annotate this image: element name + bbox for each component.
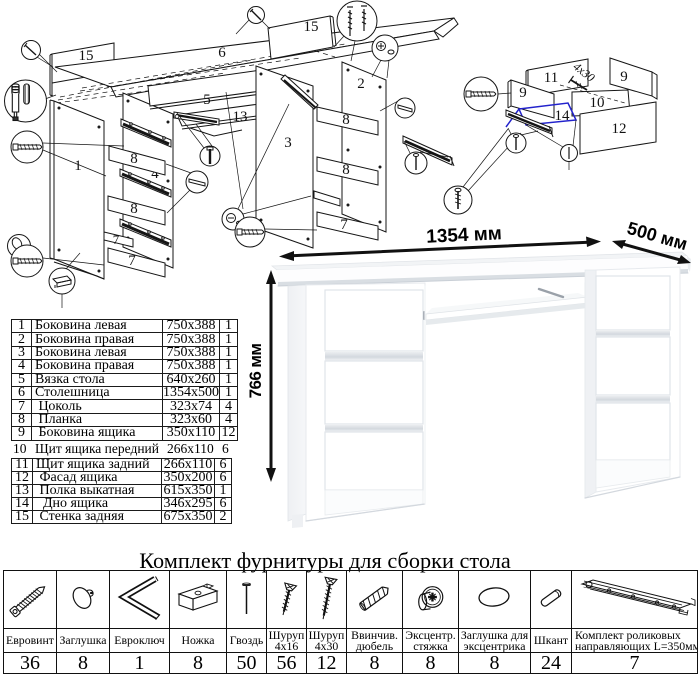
svg-text:11: 11: [544, 70, 558, 86]
svg-text:2: 2: [357, 76, 365, 92]
svg-text:9: 9: [519, 85, 527, 101]
svg-text:15: 15: [79, 48, 94, 64]
svg-text:1354 мм: 1354 мм: [426, 223, 503, 247]
svg-text:13: 13: [233, 109, 248, 125]
svg-text:6: 6: [218, 45, 226, 61]
svg-text:7: 7: [113, 232, 120, 247]
svg-text:7: 7: [128, 253, 136, 269]
svg-text:766 мм: 766 мм: [246, 344, 265, 399]
svg-text:10: 10: [590, 95, 605, 111]
svg-text:8: 8: [130, 201, 138, 217]
svg-text:9: 9: [620, 69, 628, 85]
svg-text:1: 1: [74, 158, 82, 174]
svg-text:8: 8: [342, 112, 350, 128]
svg-text:15: 15: [304, 19, 319, 35]
svg-text:8: 8: [342, 162, 350, 178]
svg-text:3: 3: [284, 135, 292, 151]
svg-text:14: 14: [555, 108, 571, 124]
svg-text:8: 8: [130, 151, 138, 167]
svg-text:12: 12: [612, 121, 627, 137]
svg-text:5: 5: [203, 92, 211, 108]
